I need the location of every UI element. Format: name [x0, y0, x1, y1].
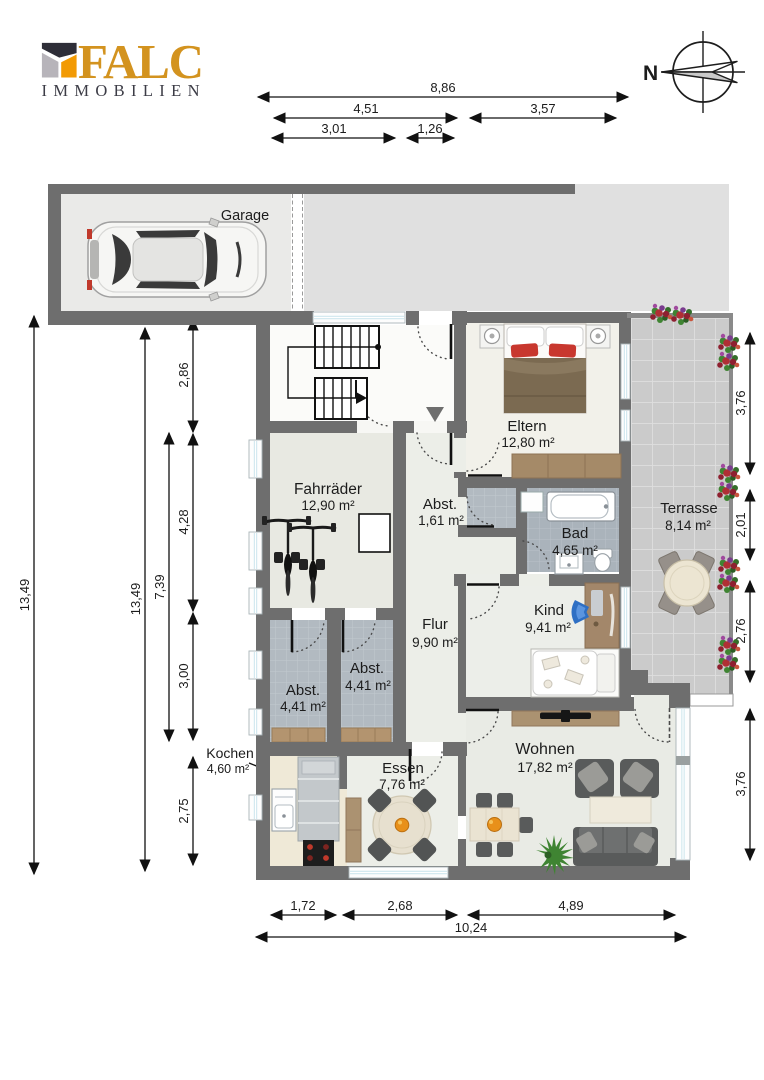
- svg-text:Kind: Kind: [534, 602, 564, 619]
- svg-text:Fahrräder: Fahrräder: [294, 481, 362, 498]
- svg-text:8,14 m²: 8,14 m²: [665, 518, 711, 533]
- svg-text:Abst.: Abst.: [350, 660, 384, 677]
- svg-text:1,61 m²: 1,61 m²: [418, 513, 464, 528]
- svg-text:2,01: 2,01: [733, 512, 748, 537]
- svg-text:3,57: 3,57: [530, 101, 555, 116]
- svg-text:4,60 m²: 4,60 m²: [207, 762, 249, 776]
- svg-text:Abst.: Abst.: [286, 682, 320, 699]
- svg-text:7,39: 7,39: [152, 574, 167, 599]
- svg-text:Kochen: Kochen: [206, 745, 253, 761]
- svg-text:10,24: 10,24: [455, 920, 488, 935]
- svg-text:4,41 m²: 4,41 m²: [345, 678, 391, 693]
- svg-text:12,90 m²: 12,90 m²: [301, 498, 355, 513]
- svg-text:Essen: Essen: [382, 760, 424, 777]
- svg-text:N: N: [643, 62, 658, 85]
- svg-text:4,51: 4,51: [353, 101, 378, 116]
- svg-text:4,28: 4,28: [176, 509, 191, 534]
- svg-text:2,68: 2,68: [387, 898, 412, 913]
- svg-text:3,00: 3,00: [176, 663, 191, 688]
- svg-text:2,86: 2,86: [176, 362, 191, 387]
- svg-text:17,82 m²: 17,82 m²: [517, 759, 573, 775]
- svg-text:4,89: 4,89: [558, 898, 583, 913]
- svg-text:Wohnen: Wohnen: [515, 741, 574, 758]
- svg-text:Flur: Flur: [422, 616, 448, 633]
- svg-text:2,75: 2,75: [176, 798, 191, 823]
- svg-text:Bad: Bad: [562, 525, 589, 542]
- svg-text:12,80 m²: 12,80 m²: [501, 435, 555, 450]
- svg-text:3,76: 3,76: [733, 771, 748, 796]
- svg-text:IMMOBILIEN: IMMOBILIEN: [42, 81, 204, 100]
- svg-text:9,41 m²: 9,41 m²: [525, 620, 571, 635]
- svg-text:1,26: 1,26: [417, 121, 442, 136]
- svg-text:3,76: 3,76: [733, 390, 748, 415]
- svg-text:13,49: 13,49: [128, 583, 143, 616]
- svg-text:9,90 m²: 9,90 m²: [412, 635, 458, 650]
- svg-text:13,49: 13,49: [17, 579, 32, 612]
- svg-text:8,86: 8,86: [430, 80, 455, 95]
- svg-text:Eltern: Eltern: [507, 418, 546, 435]
- svg-text:4,41 m²: 4,41 m²: [280, 699, 326, 714]
- svg-text:Garage: Garage: [221, 208, 269, 224]
- svg-text:Abst.: Abst.: [423, 496, 457, 513]
- svg-text:1,72: 1,72: [290, 898, 315, 913]
- svg-text:4,65 m²: 4,65 m²: [552, 543, 598, 558]
- svg-text:7,76 m²: 7,76 m²: [379, 777, 425, 792]
- svg-text:Terrasse: Terrasse: [660, 500, 718, 517]
- svg-text:3,01: 3,01: [321, 121, 346, 136]
